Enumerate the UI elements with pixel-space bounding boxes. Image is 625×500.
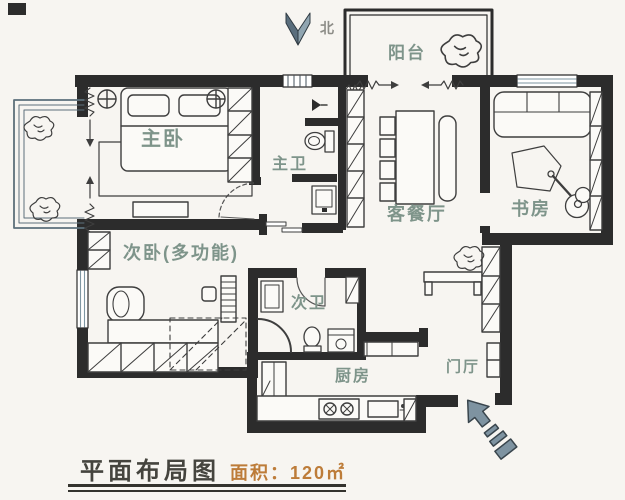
radiator — [221, 276, 236, 322]
master-bedroom-furniture — [98, 88, 252, 217]
master-bath-label: 主卫 — [272, 150, 308, 174]
tv-cabinet — [133, 202, 188, 217]
plant-icon — [441, 35, 481, 67]
study-label: 书房 — [511, 195, 551, 221]
plant-icon — [454, 247, 484, 271]
corner-mark — [8, 3, 26, 15]
title-underline-top — [68, 484, 346, 487]
north-arrow-icon — [286, 13, 310, 45]
master-bath-window — [283, 75, 312, 87]
master-bedroom-door-arc — [219, 183, 254, 217]
pillow — [128, 95, 169, 116]
balcony-label: 阳台 — [388, 39, 426, 64]
entry-hall-label: 门厅 — [446, 356, 480, 377]
second-bedroom-label: 次卧(多功能) — [123, 239, 239, 265]
guitar-icon — [548, 171, 591, 218]
second-bath-label: 次卫 — [291, 289, 327, 313]
storage-column — [347, 90, 364, 227]
rug — [512, 146, 561, 191]
title-underline-bottom — [68, 490, 346, 492]
master-bath-fixtures — [305, 99, 336, 214]
dining-table — [396, 111, 434, 204]
console-table — [424, 272, 482, 295]
dining-chairs — [380, 117, 395, 201]
master-bath-sliding-door — [266, 222, 286, 226]
bookshelf — [590, 92, 602, 230]
end-panel — [404, 399, 416, 421]
plant-icon — [24, 117, 54, 141]
wash-basin — [312, 186, 336, 214]
toilet — [305, 131, 334, 152]
shower-head-icon — [312, 99, 327, 111]
toilet — [304, 327, 321, 352]
lounge-chair — [107, 287, 144, 322]
shoe-cabinet — [482, 247, 500, 332]
wall-cabinet — [261, 281, 283, 312]
floor-plan-drawing — [0, 0, 625, 500]
plan-area: 面积：120㎡ — [230, 459, 346, 485]
wardrobe — [228, 88, 252, 182]
wardrobe — [88, 232, 110, 269]
desk — [108, 320, 218, 343]
shower-screen — [258, 319, 291, 352]
study-window — [517, 75, 577, 87]
corner-shelf — [346, 277, 359, 303]
title-block: 平面布局图 面积：120㎡ — [80, 451, 346, 486]
floor-plan-page: 主卧 主卫 客餐厅 书房 阳台 次卧(多功能) 次卫 厨房 门厅 北 平面布局图… — [0, 0, 625, 500]
washing-machine — [328, 329, 354, 352]
stool — [202, 287, 216, 301]
daybed — [494, 92, 591, 137]
hall-cabinet — [487, 343, 500, 377]
fridge — [262, 362, 286, 397]
kitchen-label: 厨房 — [335, 362, 371, 386]
plan-title: 平面布局图 — [80, 451, 220, 486]
dining-bench — [439, 116, 456, 201]
upper-counter — [364, 342, 418, 356]
master-bedroom-label: 主卧 — [141, 123, 185, 152]
second-bedroom-window — [77, 270, 88, 328]
stove — [319, 399, 359, 419]
pillow — [179, 95, 220, 116]
living-dining-label: 客餐厅 — [387, 200, 447, 226]
north-label: 北 — [320, 18, 334, 38]
